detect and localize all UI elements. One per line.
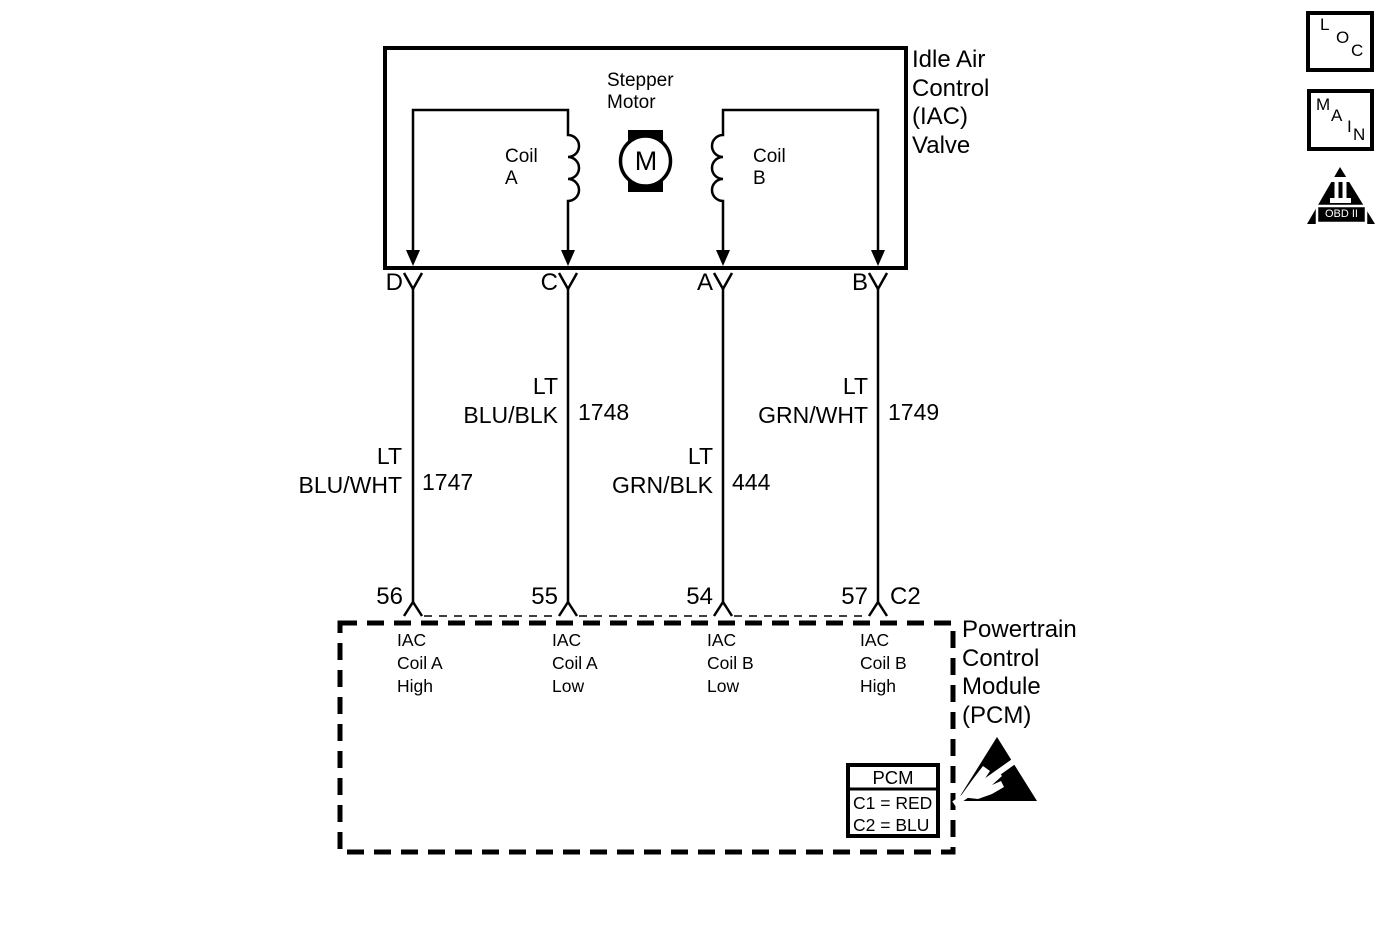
pcm-pin-number: 55 (508, 584, 558, 610)
coil-a-symbol (406, 110, 579, 266)
pcm-legend-row-c2: C2 = BLU (853, 814, 929, 837)
main-badge-letter: I (1347, 118, 1352, 135)
valve-pin-letter-c: C (508, 269, 558, 298)
stepper-motor-label: Stepper Motor (607, 70, 674, 114)
arrow-down-icon (716, 250, 730, 266)
wire-color-label: LT BLU/WHT (252, 442, 402, 500)
pcm-pin-function: IAC Coil A High (397, 629, 443, 698)
obd2-badge-label: OBD II (1317, 208, 1366, 221)
valve-pin-letter-a: A (663, 269, 713, 298)
main-badge-letter: A (1331, 107, 1342, 124)
pcm-connector-label: C2 (890, 584, 921, 610)
arrow-down-icon (871, 250, 885, 266)
pcm-pin-function: IAC Coil A Low (552, 629, 598, 698)
loc-badge-letter: C (1351, 42, 1363, 59)
coil-b-label: Coil B (753, 146, 786, 190)
valve-pin-letter-d: D (353, 269, 403, 298)
motor-symbol-letter: M (628, 146, 664, 177)
coil-b-symbol (712, 110, 885, 266)
valve-connector-symbols (404, 273, 887, 289)
valve-pin-letter-b: B (818, 269, 868, 298)
circuit-number: 1747 (422, 468, 473, 497)
pcm-pin-function: IAC Coil B Low (707, 629, 754, 698)
wire-color-label: LT BLU/BLK (408, 372, 558, 430)
main-badge-letter: N (1353, 126, 1365, 143)
pcm-title: Powertrain Control Module (PCM) (962, 616, 1077, 730)
arrow-down-icon (406, 250, 420, 266)
circuit-number: 444 (732, 468, 770, 497)
circuit-number: 1748 (578, 398, 629, 427)
pcm-connector-symbols (404, 602, 887, 616)
pcm-legend-row-c1: C1 = RED (853, 792, 932, 815)
pcm-pin-number: 56 (353, 584, 403, 610)
wiring-diagram: Idle Air Control (IAC) Valve Stepper Mot… (0, 0, 1380, 930)
pcm-legend-title: PCM (848, 767, 938, 789)
wire-color-label: LT GRN/WHT (718, 372, 868, 430)
pcm-pin-function: IAC Coil B High (860, 629, 907, 698)
coil-a-label: Coil A (505, 146, 538, 190)
loc-badge-letter: O (1336, 29, 1349, 46)
circuit-number: 1749 (888, 398, 939, 427)
iac-valve-title: Idle Air Control (IAC) Valve (912, 46, 989, 160)
main-badge-letter: M (1316, 96, 1330, 113)
esd-warning-icon (954, 737, 1037, 804)
loc-badge-letter: L (1320, 16, 1329, 33)
pcm-pin-number: 57 (818, 584, 868, 610)
arrow-down-icon (561, 250, 575, 266)
wire-color-label: LT GRN/BLK (563, 442, 713, 500)
pcm-pin-number: 54 (663, 584, 713, 610)
